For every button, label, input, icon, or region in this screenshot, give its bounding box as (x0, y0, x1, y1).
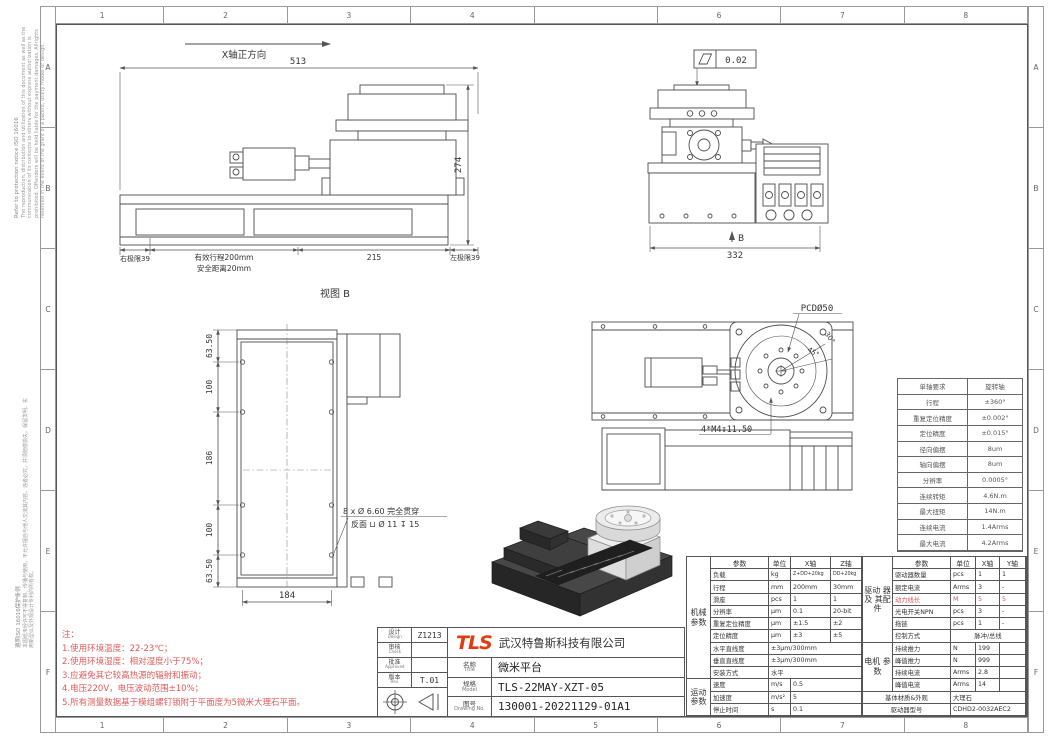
approved-row: 批准Approved (378, 658, 447, 673)
group-motor: 电机 参数 (863, 643, 893, 692)
rev-row: 版本Rev. T.01 (378, 673, 447, 688)
col-header: 参数 (893, 557, 951, 569)
param-x: 5 (976, 594, 1000, 606)
view-b-title: 视图 B (320, 287, 350, 300)
approved-value (412, 658, 447, 672)
model-row: 规格Model TLS-22MAY-XZT-05 (448, 678, 684, 698)
param-unit: m/s² (769, 692, 791, 704)
projection-cone-icon (417, 692, 443, 712)
dim-63-50-bottom: 63.50 (205, 559, 214, 583)
col-header: 参数 (711, 557, 769, 569)
check-row: 审核Check (378, 643, 447, 658)
zone-label: D (1029, 370, 1043, 491)
param-label: 行程 (711, 581, 769, 593)
param-unit: μm (769, 618, 791, 630)
zone-label: 8 (905, 7, 1027, 23)
flatness-value: 0.02 (725, 56, 747, 66)
col-header: 单位 (951, 557, 976, 569)
name-label-en: Title (464, 668, 475, 673)
param-x: 3 (976, 606, 1000, 618)
group-mechanical: 机械 参数 (687, 557, 711, 679)
rev-value: T.01 (412, 673, 447, 687)
param-label: 垂直直线度 (711, 655, 769, 667)
dim-travel-text: 有效行程200mm (195, 252, 254, 262)
zone-label: 6 (658, 718, 781, 732)
param-label: 控制方式 (893, 630, 951, 642)
check-label: 审核Check (378, 643, 412, 657)
param-y-empty (1000, 679, 1026, 691)
tls-logo: TLS (456, 632, 492, 654)
spec-key: 重复定位精度 (898, 410, 968, 426)
param-label: 持续电流 (893, 667, 951, 679)
param-y: - (1000, 606, 1026, 618)
thread-label: 4*M4↧11.50 (701, 425, 752, 435)
drawing-no-label: 图号Drawing No. (448, 697, 492, 716)
iso-notice-body: The reproduction, distribution and utili… (21, 15, 46, 218)
notes-block: 注： 1.使用环境温度：22-23℃； 2.使用环境湿度：相对湿度小于75%； … (62, 629, 377, 710)
name-value: 微米平台 (492, 658, 684, 677)
iso-notice-body-cn: 本图纸未经许可不得复制、传播与使用，不允许擅自与他人交流其内容。违者必究，并须赔… (23, 396, 36, 648)
param-unit: μm (769, 606, 791, 618)
spec-key: 轴向偏摆 (898, 457, 968, 473)
dim-513-text: 513 (290, 57, 306, 67)
param-label: 负载 (711, 569, 769, 581)
param-x: 3 (976, 581, 1000, 593)
design-row: 设计Design Z1213 (378, 628, 447, 643)
param-label: 峰值电流 (893, 679, 951, 691)
title-block-main: TLS 武汉特鲁斯科技有限公司 名称Title 微米平台 规格Model TLS… (448, 628, 684, 716)
zone-label: 3 (288, 718, 411, 732)
iso-notice-chinese: 遵照ISO 16016保护条例 本图纸未经许可不得复制、传播与使用，不允许擅自与… (14, 396, 36, 648)
param-y: 1 (1000, 569, 1026, 581)
param-z: 20-bit (831, 606, 862, 618)
title-block-signatures: 设计Design Z1213 审核Check 批准Approved 版本Rev.… (378, 628, 448, 716)
param-label: 重复定位精度 (711, 618, 769, 630)
param-span-value: ±3μm/300mm (769, 655, 862, 667)
machine-outline (120, 85, 468, 245)
iso-notice-english: Refer to protection notice ISO 16016 The… (14, 15, 46, 218)
param-label-material: 基体材质&外观 (863, 692, 951, 704)
name-row: 名称Title 微米平台 (448, 658, 684, 678)
param-y-empty (1000, 655, 1026, 667)
zone-strip-top: 1 2 3 4 6 7 8 (40, 6, 1028, 24)
body-outline (237, 330, 400, 587)
param-z: ±2 (831, 618, 862, 630)
drawing-no-row: 图号Drawing No. 130001-20221129-01A1 (448, 697, 684, 716)
zone-label: 2 (164, 7, 287, 23)
spec-value: 8um (968, 457, 1022, 473)
hole-note-line1: 8 x Ø 6.60 完全贯穿 (343, 506, 419, 516)
zone-label: F (1029, 612, 1043, 732)
param-unit: μm (769, 630, 791, 642)
view-b-arrow: B (732, 232, 744, 244)
zone-label: A (1029, 7, 1043, 128)
param-label: 分辨率 (711, 606, 769, 618)
zone-label: E (41, 491, 55, 612)
zone-label: C (1029, 249, 1043, 370)
dim-left-limit-text: 左极限39 (450, 253, 480, 262)
param-z: 1 (831, 594, 862, 606)
company-name: 武汉特鲁斯科技有限公司 (499, 635, 626, 651)
param-label-power-cable: 动力线长 (893, 594, 951, 606)
param-x: ±3 (791, 630, 831, 642)
param-unit: N (951, 643, 976, 655)
spec-key: 径向偏摆 (898, 442, 968, 458)
param-x: 1 (976, 569, 1000, 581)
param-x: 14 (976, 679, 1000, 691)
col-header: Y轴 (1000, 557, 1026, 569)
param-label: 速度 (711, 679, 769, 691)
vertical-dim-chain (213, 330, 239, 587)
spec-value: 0.0005° (968, 473, 1022, 489)
base-lower-outline (602, 428, 852, 490)
zone-label: 1 (41, 718, 164, 732)
zone-label: 4 (411, 7, 534, 23)
param-x: 999 (976, 655, 1000, 667)
spec-key: 定位精度 (898, 426, 968, 442)
zone-label: 3 (288, 7, 411, 23)
param-unit: pcs (769, 594, 791, 606)
design-value: Z1213 (412, 628, 447, 642)
param-unit: pcs (951, 618, 976, 630)
dim-right-limit-text: 右极限39 (120, 254, 150, 263)
col-header: Z轴 (831, 557, 862, 569)
zone-label: 1 (41, 7, 164, 23)
param-x: ±1.5 (791, 618, 831, 630)
dim-332-text: 332 (727, 251, 743, 260)
body-outline (592, 322, 853, 420)
param-z: 30mm (831, 581, 862, 593)
dim-186: 186 (205, 451, 214, 466)
note-item: 5.所有测量数据基于模组螺钉锁附于平面度为5微米大理石平面。 (62, 697, 377, 711)
spec-value: 旋转轴 (968, 379, 1022, 395)
param-unit: pcs (951, 606, 976, 618)
datum-target-icon (382, 690, 408, 714)
model-value: TLS-22MAY-XZT-05 (492, 678, 684, 697)
param-x: Z+DD+20kg (791, 569, 831, 581)
param-x: 2.8 (976, 667, 1000, 679)
spec-key: 连续电流 (898, 520, 968, 536)
spec-value: 8um (968, 442, 1022, 458)
top-view: 45° 30° PCDØ50 4*M4↧11.50 (585, 302, 885, 497)
zone-label: F (41, 612, 55, 732)
param-unit: N (951, 655, 976, 667)
note-item: 3.应避免其它较高热源的辐射和振动； (62, 670, 377, 684)
spec-key: 分辨率 (898, 473, 968, 489)
model-label: 规格Model (448, 678, 492, 697)
iso-view (480, 488, 680, 624)
spec-value: 4.2Arms (968, 535, 1022, 551)
param-label: 滑座 (711, 594, 769, 606)
x-axis-label: X轴正方向 (222, 49, 267, 61)
model-label-en: Model (462, 688, 477, 693)
view-b: 视图 B 63.50 100 186 100 63.50 184 (195, 284, 507, 622)
approved-label-en: Approved (385, 666, 404, 670)
design-label: 设计Design (378, 628, 412, 642)
iso-machine (492, 506, 672, 616)
pcd-label: PCDØ50 (801, 303, 834, 314)
param-unit: m/s (769, 679, 791, 691)
dim-63-50-top: 63.50 (205, 334, 214, 358)
param-unit: kg (769, 569, 791, 581)
param-label: 停止时间 (711, 704, 769, 716)
param-label: 安装方式 (711, 667, 769, 679)
zone-label: 2 (164, 718, 287, 732)
approved-label: 批准Approved (378, 658, 412, 672)
engineering-drawing-sheet: { "colors": {"accent_red": "#e05252", "l… (0, 0, 1050, 739)
param-label: 驱动器数量 (893, 569, 951, 581)
param-x: 1 (976, 618, 1000, 630)
mech-motion-params-table: 机械 参数 参数 单位 X轴 Z轴 负载 kg Z+DD+20kg DD+20k… (686, 556, 863, 717)
dim-100-top: 100 (205, 380, 214, 395)
param-label: 额定电流 (893, 581, 951, 593)
zone-label: D (41, 370, 55, 491)
param-y: 5 (1000, 594, 1026, 606)
zone-label: 8 (905, 718, 1027, 732)
front-view: X轴正方向 513 274 右极限39 有效行程200mm 安全距离20mm 2… (58, 28, 486, 280)
note-item: 1.使用环境温度：22-23℃； (62, 643, 377, 657)
title-block: 设计Design Z1213 审核Check 批准Approved 版本Rev.… (377, 627, 685, 717)
driver-motor-params-table: 驱动 器及 其配 件 参数 单位 X轴 Y轴 驱动器数量 pcs 1 1 额定电… (862, 556, 1027, 717)
group-motion: 运动 参数 (687, 679, 711, 716)
dim-332 (650, 226, 820, 252)
zone-label: B (1029, 128, 1043, 249)
zone-strip-right: A B C D E F (1028, 6, 1044, 733)
param-span-value: CDHD2-0032AEC2 (951, 704, 1026, 716)
check-label-en: Check (388, 651, 400, 655)
param-unit: pcs (951, 569, 976, 581)
drawing-no-label-en: Drawing No. (454, 707, 485, 712)
param-x: 199 (976, 643, 1000, 655)
param-label: 加速度 (711, 692, 769, 704)
param-label: 拖链 (893, 618, 951, 630)
machine-outline (648, 85, 828, 223)
dim-184-text: 184 (279, 591, 295, 601)
spec-key: 最大扭矩 (898, 504, 968, 520)
zone-label: 7 (781, 7, 904, 23)
design-label-en: Design (387, 636, 401, 640)
col-header: 单位 (769, 557, 791, 569)
hole-note-line2: 反面 ⊔ Ø 11 ↧ 15 (351, 519, 419, 529)
iso-notice-title: Refer to protection notice ISO 16016 (14, 15, 20, 218)
col-header: X轴 (976, 557, 1000, 569)
spec-key: 连续转矩 (898, 488, 968, 504)
param-label-driver-model: 驱动器型号 (863, 704, 951, 716)
dim-274-text: 274 (454, 157, 464, 173)
drawing-no-value: 130001-20221129-01A1 (492, 697, 684, 716)
param-z: ±5 (831, 630, 862, 642)
spec-value: 1.4Arms (968, 520, 1022, 536)
param-span-value: 大理石 (951, 692, 1026, 704)
param-label: 光电开关NPN (893, 606, 951, 618)
param-label: 定位精度 (711, 630, 769, 642)
col-header: X轴 (791, 557, 831, 569)
company-row: TLS 武汉特鲁斯科技有限公司 (448, 628, 684, 658)
spec-value: ±0.015° (968, 426, 1022, 442)
param-span-value: 水平 (769, 667, 862, 679)
iso-notice-title-cn: 遵照ISO 16016保护条例 (14, 396, 22, 648)
spec-value: ±360° (968, 395, 1022, 411)
projection-symbols (378, 688, 447, 716)
view-b-arrow-label: B (738, 234, 744, 244)
param-unit: Arms (951, 667, 976, 679)
spec-key: 行程 (898, 395, 968, 411)
check-value (412, 643, 447, 657)
rev-label: 版本Rev. (378, 673, 412, 687)
dim-215-text: 215 (367, 253, 382, 262)
x-axis-direction-arrow: X轴正方向 (185, 44, 330, 61)
dim-100-bottom: 100 (205, 523, 214, 538)
zone-label: C (41, 249, 55, 370)
spec-key: 单轴要求 (898, 379, 968, 395)
param-unit: Arms (951, 581, 976, 593)
spec-value: 4.6N.m (968, 488, 1022, 504)
axis-spec-table: 单轴要求旋转轴 行程±360° 重复定位精度±0.002° 定位精度±0.015… (897, 378, 1023, 552)
param-y-empty (1000, 643, 1026, 655)
param-x: 0.1 (791, 606, 831, 618)
zone-label (535, 7, 658, 23)
param-unit: Arms (951, 679, 976, 691)
param-label: 峰值推力 (893, 655, 951, 667)
param-span-value: 0.1 (791, 704, 862, 716)
param-label: 持续推力 (893, 643, 951, 655)
notes-title: 注： (62, 629, 377, 643)
rear-view: 0.02 B 332 (640, 38, 850, 260)
param-span-value: 0.5 (791, 679, 862, 691)
rev-label-en: Rev. (390, 681, 398, 685)
param-x: 1 (791, 594, 831, 606)
param-unit: mm (769, 581, 791, 593)
spec-key: 最大电流 (898, 535, 968, 551)
group-driver: 驱动 器及 其配 件 (863, 557, 893, 643)
zone-label: 6 (658, 7, 781, 23)
param-y: - (1000, 581, 1026, 593)
note-item: 4.电压220V，电压波动范围±10%； (62, 683, 377, 697)
param-unit: M (951, 594, 976, 606)
zone-label: 4 (411, 718, 534, 732)
param-y: - (1000, 618, 1026, 630)
zone-label: 7 (781, 718, 904, 732)
spec-value: 14N.m (968, 504, 1022, 520)
dim-safety-text: 安全距离20mm (197, 263, 251, 273)
param-span-value: ±3μm/300mm (769, 643, 862, 655)
zone-label: 5 (535, 718, 658, 732)
param-label: 水平直线度 (711, 643, 769, 655)
name-label: 名称Title (448, 658, 492, 677)
param-y-empty (1000, 667, 1026, 679)
param-x: 200mm (791, 581, 831, 593)
param-span-value: 脉冲/总线 (951, 630, 1026, 642)
hole-note: 8 x Ø 6.60 完全贯穿 反面 ⊔ Ø 11 ↧ 15 (334, 506, 447, 553)
param-unit: s (769, 704, 791, 716)
zone-label: E (1029, 491, 1043, 612)
param-span-value: 5 (791, 692, 862, 704)
flatness-callout: 0.02 (694, 50, 756, 86)
spec-value: ±0.002° (968, 410, 1022, 426)
note-item: 2.使用环境湿度：相对湿度小于75%； (62, 656, 377, 670)
zone-strip-bottom: 1 2 3 4 5 6 7 8 (40, 717, 1028, 733)
param-z: DD+20kg (831, 569, 862, 581)
